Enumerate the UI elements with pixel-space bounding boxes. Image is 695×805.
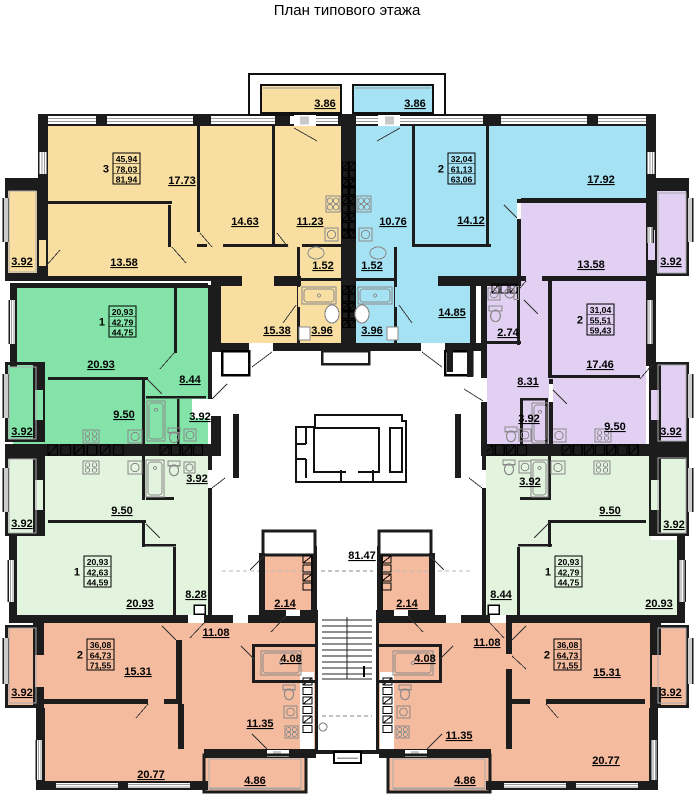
svg-text:8.28: 8.28 <box>185 589 206 601</box>
svg-text:4.86: 4.86 <box>244 775 265 787</box>
svg-text:15.38: 15.38 <box>263 325 291 337</box>
svg-text:8.44: 8.44 <box>179 374 201 386</box>
svg-text:44,75: 44,75 <box>112 328 134 338</box>
svg-text:3.92: 3.92 <box>11 426 32 438</box>
svg-text:8.44: 8.44 <box>490 589 512 601</box>
svg-text:20.93: 20.93 <box>126 598 154 610</box>
svg-text:71,55: 71,55 <box>557 661 579 671</box>
svg-text:81,94: 81,94 <box>116 175 138 185</box>
svg-text:17.46: 17.46 <box>586 359 614 371</box>
svg-text:3: 3 <box>103 164 109 176</box>
svg-text:15.31: 15.31 <box>124 666 152 678</box>
svg-text:11.35: 11.35 <box>446 730 473 742</box>
svg-text:13.58: 13.58 <box>110 257 138 269</box>
svg-text:20.93: 20.93 <box>87 359 115 371</box>
svg-text:42,79: 42,79 <box>558 567 580 577</box>
svg-text:45,94: 45,94 <box>116 154 138 164</box>
svg-text:2.74: 2.74 <box>497 327 519 339</box>
svg-text:2.14: 2.14 <box>274 598 296 610</box>
svg-text:3.92: 3.92 <box>189 411 210 423</box>
svg-text:3.92: 3.92 <box>11 256 32 268</box>
svg-text:9.50: 9.50 <box>113 409 134 421</box>
svg-text:3.96: 3.96 <box>311 325 332 337</box>
svg-text:8.31: 8.31 <box>517 376 538 388</box>
svg-text:3.92: 3.92 <box>660 256 681 268</box>
svg-text:78,03: 78,03 <box>116 164 138 174</box>
svg-text:14.85: 14.85 <box>438 307 466 319</box>
svg-text:2.14: 2.14 <box>396 598 418 610</box>
svg-text:2: 2 <box>577 315 583 327</box>
svg-text:20.77: 20.77 <box>137 769 165 781</box>
svg-text:63,06: 63,06 <box>451 175 473 185</box>
svg-text:2: 2 <box>544 650 550 662</box>
svg-text:44,75: 44,75 <box>558 578 580 588</box>
svg-text:20,93: 20,93 <box>87 557 109 567</box>
svg-text:31,04: 31,04 <box>590 305 612 315</box>
svg-text:3.86: 3.86 <box>404 98 425 110</box>
svg-text:11.08: 11.08 <box>203 627 230 639</box>
svg-text:4.86: 4.86 <box>454 775 475 787</box>
svg-text:44,59: 44,59 <box>87 578 109 588</box>
svg-text:3.92: 3.92 <box>660 687 681 699</box>
svg-text:64,73: 64,73 <box>90 650 112 660</box>
svg-text:81.47: 81.47 <box>348 550 376 562</box>
svg-text:План типового этажа: План типового этажа <box>274 2 421 19</box>
svg-text:32,04: 32,04 <box>451 154 473 164</box>
svg-text:3.92: 3.92 <box>660 426 681 438</box>
svg-text:17.73: 17.73 <box>168 175 196 187</box>
svg-text:3.86: 3.86 <box>314 98 335 110</box>
svg-text:1.52: 1.52 <box>361 260 382 272</box>
svg-text:14.63: 14.63 <box>231 216 259 228</box>
svg-text:71,55: 71,55 <box>90 661 112 671</box>
svg-text:10.76: 10.76 <box>379 216 407 228</box>
svg-text:3.92: 3.92 <box>663 519 684 531</box>
svg-text:11.23: 11.23 <box>297 216 324 228</box>
svg-text:3.92: 3.92 <box>519 476 540 488</box>
svg-text:59,43: 59,43 <box>590 326 612 336</box>
svg-text:11.35: 11.35 <box>247 718 274 730</box>
svg-text:9.50: 9.50 <box>111 505 132 517</box>
svg-text:3.92: 3.92 <box>11 518 32 530</box>
svg-text:17.92: 17.92 <box>587 174 615 186</box>
svg-text:3.92: 3.92 <box>518 413 539 425</box>
svg-text:20,93: 20,93 <box>112 307 134 317</box>
svg-text:11.08: 11.08 <box>474 637 501 649</box>
svg-text:3.92: 3.92 <box>186 473 207 485</box>
svg-text:64,73: 64,73 <box>557 650 579 660</box>
svg-text:36,08: 36,08 <box>90 640 112 650</box>
svg-text:4.08: 4.08 <box>414 653 435 665</box>
svg-text:1: 1 <box>74 567 80 579</box>
svg-text:14.12: 14.12 <box>457 215 485 227</box>
svg-text:42,63: 42,63 <box>87 567 109 577</box>
svg-text:3.92: 3.92 <box>11 687 32 699</box>
svg-text:3.96: 3.96 <box>361 325 382 337</box>
svg-text:20.77: 20.77 <box>592 755 620 767</box>
svg-text:55,51: 55,51 <box>590 315 612 325</box>
svg-text:61,13: 61,13 <box>451 164 473 174</box>
svg-text:4.08: 4.08 <box>280 653 301 665</box>
svg-text:1: 1 <box>545 567 551 579</box>
svg-text:42,79: 42,79 <box>112 317 134 327</box>
svg-text:36,08: 36,08 <box>557 640 579 650</box>
svg-text:1: 1 <box>99 317 105 329</box>
svg-text:15.31: 15.31 <box>593 667 621 679</box>
svg-text:9.50: 9.50 <box>604 421 625 433</box>
svg-text:13.58: 13.58 <box>577 259 605 271</box>
svg-text:2: 2 <box>438 164 444 176</box>
svg-text:2: 2 <box>77 650 83 662</box>
svg-text:20,93: 20,93 <box>558 557 580 567</box>
svg-text:20.93: 20.93 <box>645 598 673 610</box>
svg-text:1.52: 1.52 <box>312 260 333 272</box>
svg-text:9.50: 9.50 <box>599 505 620 517</box>
